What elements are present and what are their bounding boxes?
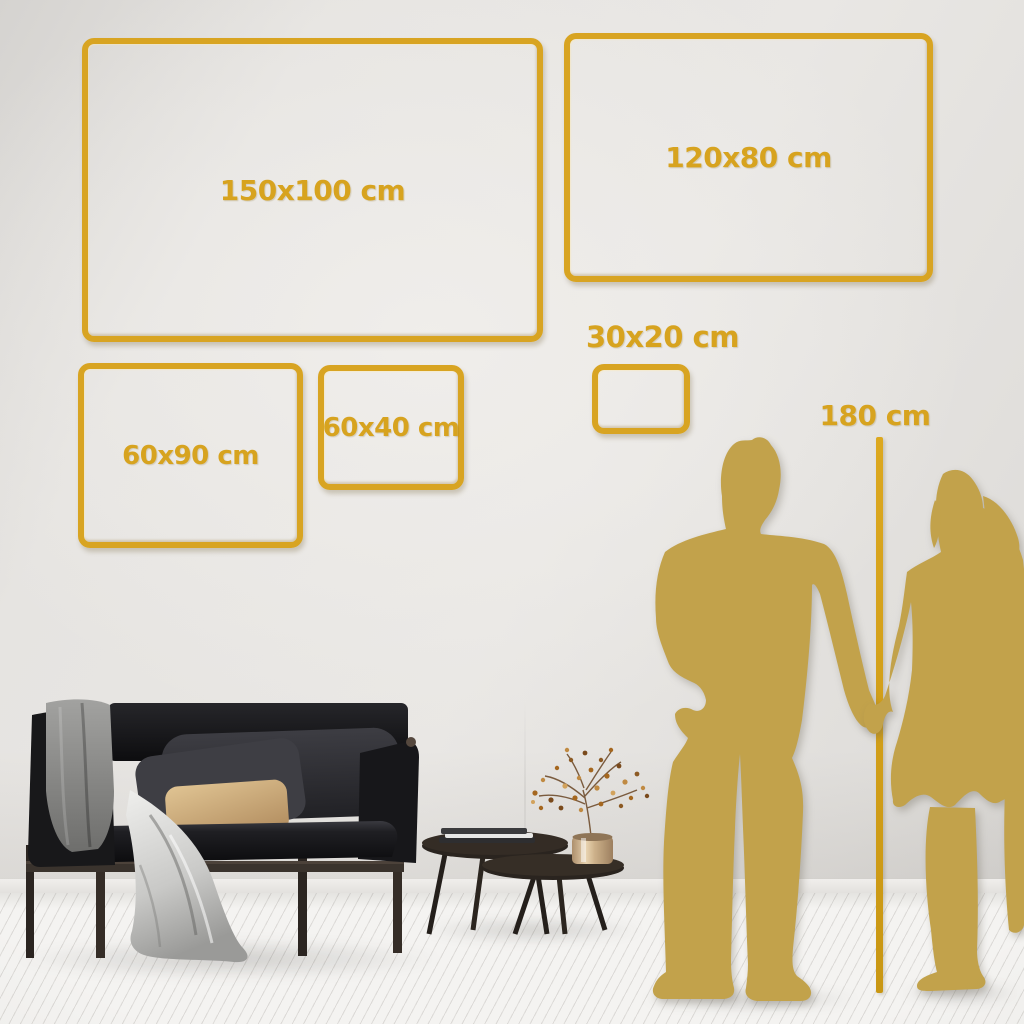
frame-label-120x80: 120x80 cm xyxy=(665,141,832,174)
frame-label-30x20: 30x20 cm xyxy=(586,320,739,354)
frame-label-60x90: 60x90 cm xyxy=(122,441,259,471)
plant-berries xyxy=(531,748,649,812)
frame-60x90: 60x90 cm xyxy=(78,363,303,548)
large-table xyxy=(422,831,568,934)
frame-150x100: 150x100 cm xyxy=(82,38,543,342)
height-ruler-label: 180 cm xyxy=(800,399,950,432)
frame-30x20 xyxy=(592,364,690,434)
small-table xyxy=(482,854,624,934)
books xyxy=(439,828,535,843)
frame-60x40: 60x40 cm xyxy=(318,365,464,490)
plant-pot xyxy=(572,833,613,864)
frame-label-60x40: 60x40 cm xyxy=(323,413,460,443)
coffee-tables xyxy=(415,738,655,938)
woman-silhouette xyxy=(855,460,1024,1005)
frame-120x80: 120x80 cm xyxy=(564,33,933,282)
frame-label-150x100: 150x100 cm xyxy=(220,174,405,207)
man-silhouette xyxy=(640,432,880,1007)
woman-silhouette-shape xyxy=(864,470,1024,991)
plant-branches xyxy=(539,752,637,836)
size-guide-scene: 150x100 cm 120x80 cm 60x90 cm 60x40 cm 3… xyxy=(0,0,1024,1024)
man-silhouette-shape xyxy=(653,437,877,1001)
sofa xyxy=(12,695,422,967)
gray-blanket xyxy=(46,699,114,852)
